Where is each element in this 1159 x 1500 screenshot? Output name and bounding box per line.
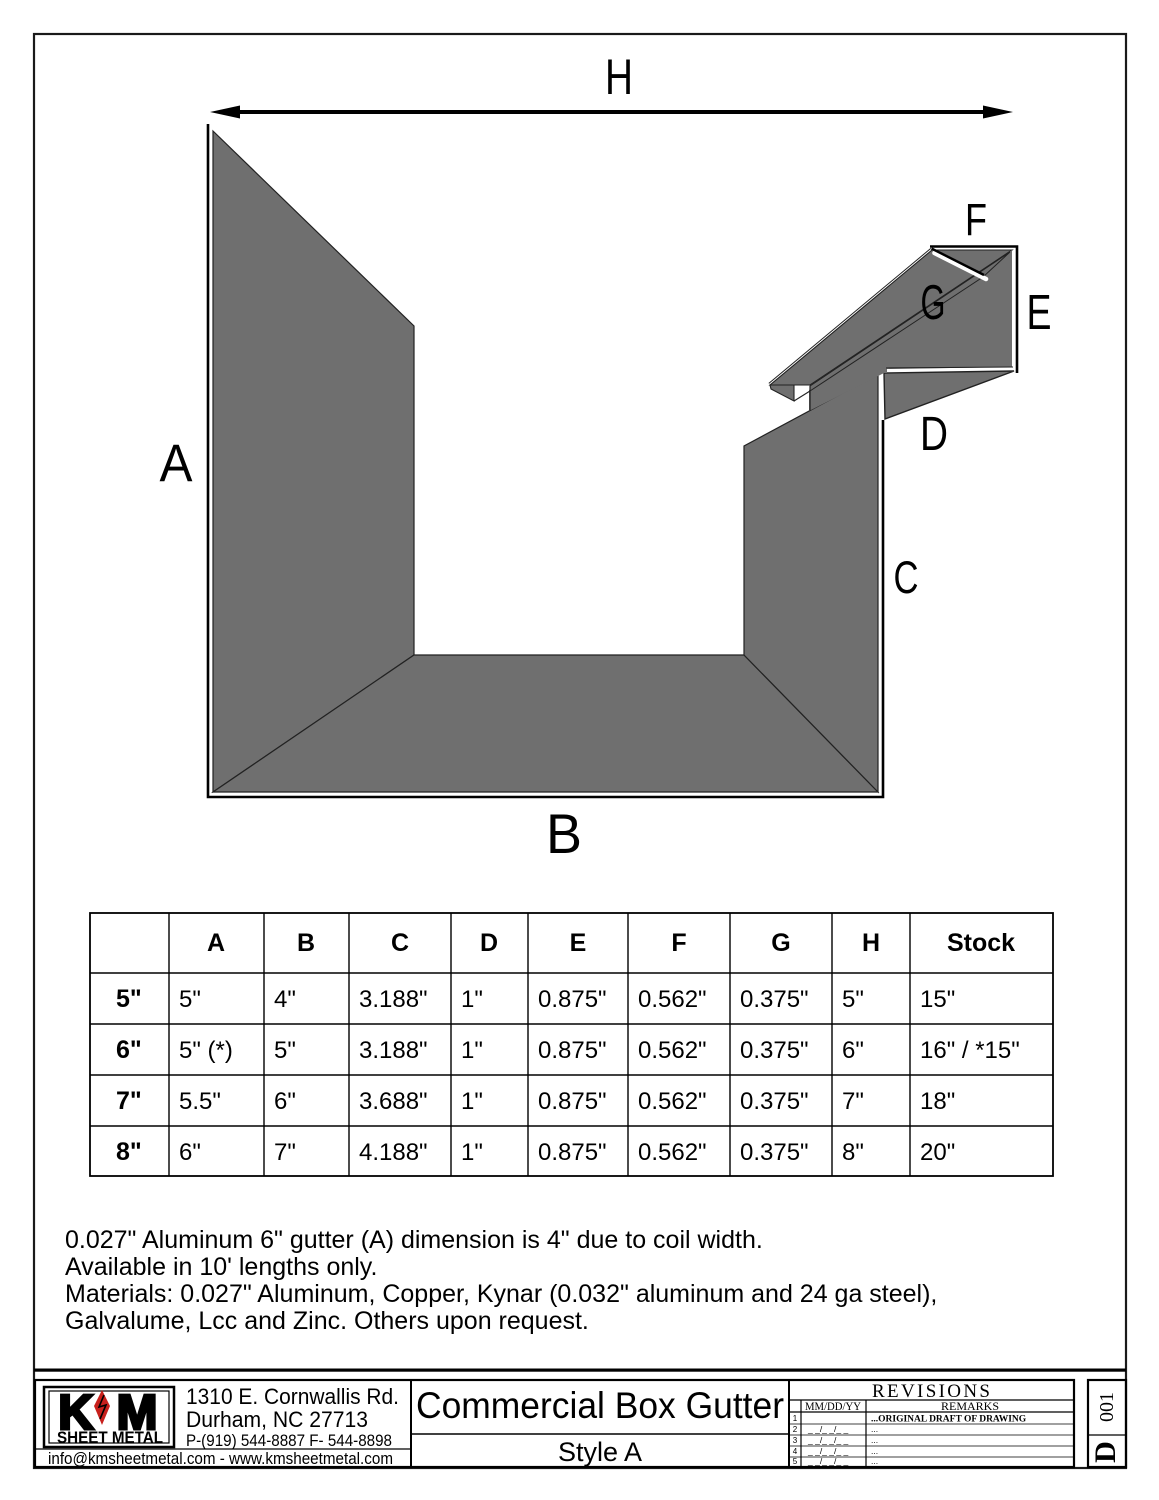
svg-text:1: 1 [793, 1414, 798, 1423]
svg-text:H: H [605, 49, 633, 105]
svg-text:6": 6" [842, 1037, 864, 1064]
svg-text:E: E [570, 929, 587, 957]
svg-text:0.562": 0.562" [638, 1088, 707, 1115]
svg-text:_ _/_ _/_ _: _ _/_ _/_ _ [807, 1446, 848, 1456]
svg-text:D: D [480, 929, 498, 957]
svg-text:20": 20" [920, 1139, 955, 1166]
svg-text:0.375": 0.375" [740, 1139, 809, 1166]
svg-text:1": 1" [461, 1139, 483, 1166]
svg-text:P-(919) 544-8887 F- 544-8898: P-(919) 544-8887 F- 544-8898 [186, 1431, 392, 1450]
svg-text:0.375": 0.375" [740, 1088, 809, 1115]
svg-text:5: 5 [793, 1457, 798, 1466]
svg-text:Available in 10' lengths only.: Available in 10' lengths only. [65, 1253, 377, 1281]
svg-text:5.5": 5.5" [179, 1088, 221, 1115]
svg-text:0.562": 0.562" [638, 1139, 707, 1166]
svg-text:D: D [920, 408, 948, 461]
svg-text:B: B [297, 929, 315, 957]
svg-text:3.188": 3.188" [359, 1037, 428, 1064]
svg-text:4.188": 4.188" [359, 1139, 428, 1166]
svg-text:...: ... [871, 1435, 878, 1445]
svg-text:B: B [546, 802, 582, 865]
svg-text:REMARKS: REMARKS [941, 1399, 999, 1413]
svg-text:_ _/_ _/_ _: _ _/_ _/_ _ [807, 1435, 848, 1445]
svg-text:001: 001 [1096, 1392, 1118, 1422]
svg-text:0.562": 0.562" [638, 986, 707, 1013]
svg-text:D: D [1089, 1441, 1122, 1463]
svg-text:Stock: Stock [947, 929, 1015, 957]
svg-text:...: ... [871, 1424, 878, 1434]
svg-text:6": 6" [116, 1036, 142, 1064]
svg-text:C: C [391, 929, 409, 957]
svg-text:1": 1" [461, 1037, 483, 1064]
svg-text:_ _/_ _/_ _: _ _/_ _/_ _ [807, 1424, 848, 1434]
svg-text:...: ... [871, 1446, 878, 1456]
svg-text:MM/DD/YY: MM/DD/YY [805, 1399, 861, 1413]
svg-text:E: E [1027, 286, 1052, 340]
svg-text:5": 5" [179, 986, 201, 1013]
svg-text:A: A [207, 929, 225, 957]
svg-text:3.688": 3.688" [359, 1088, 428, 1115]
svg-text:3: 3 [793, 1436, 798, 1445]
svg-text:...: ... [871, 1456, 878, 1466]
svg-text:F: F [671, 929, 686, 957]
svg-text:...ORIGINAL DRAFT OF DRAWING: ...ORIGINAL DRAFT OF DRAWING [871, 1415, 1027, 1425]
svg-text:info@kmsheetmetal.com - www.km: info@kmsheetmetal.com - www.kmsheetmetal… [48, 1449, 393, 1468]
svg-text:2: 2 [793, 1425, 798, 1434]
svg-text:16" / *15": 16" / *15" [920, 1037, 1020, 1064]
svg-text:0.875": 0.875" [538, 1139, 607, 1166]
svg-text:A: A [160, 434, 194, 493]
svg-text:15": 15" [920, 986, 955, 1013]
svg-text:5" (*): 5" (*) [179, 1037, 233, 1064]
svg-text:1": 1" [461, 986, 483, 1013]
svg-text:_ _/_ _/_ _: _ _/_ _/_ _ [807, 1456, 848, 1466]
svg-text:5": 5" [116, 985, 142, 1013]
svg-text:0.875": 0.875" [538, 986, 607, 1013]
svg-text:8": 8" [116, 1138, 142, 1166]
svg-text:0.562": 0.562" [638, 1037, 707, 1064]
svg-text:6": 6" [274, 1088, 296, 1115]
svg-text:0.875": 0.875" [538, 1037, 607, 1064]
svg-text:5": 5" [842, 986, 864, 1013]
svg-text:G: G [921, 276, 946, 330]
svg-text:Materials: 0.027" Aluminum, Co: Materials: 0.027" Aluminum, Copper, Kyna… [65, 1280, 937, 1308]
svg-text:18": 18" [920, 1088, 955, 1115]
svg-text:G: G [771, 929, 790, 957]
svg-text:8": 8" [842, 1139, 864, 1166]
svg-text:0.375": 0.375" [740, 986, 809, 1013]
svg-text:7": 7" [842, 1088, 864, 1115]
svg-text:0.027" Aluminum 6" gutter (A): 0.027" Aluminum 6" gutter (A) dimension … [65, 1226, 763, 1254]
svg-text:1310 E. Cornwallis Rd.: 1310 E. Cornwallis Rd. [186, 1384, 399, 1409]
svg-text:4: 4 [793, 1447, 798, 1456]
svg-text:7": 7" [274, 1139, 296, 1166]
svg-text:7": 7" [116, 1087, 142, 1115]
svg-text:0.875": 0.875" [538, 1088, 607, 1115]
svg-text:3.188": 3.188" [359, 986, 428, 1013]
svg-text:Style A: Style A [558, 1437, 642, 1467]
svg-text:C: C [894, 552, 919, 603]
svg-text:Commercial Box Gutter: Commercial Box Gutter [416, 1385, 784, 1426]
svg-text:6": 6" [179, 1139, 201, 1166]
svg-text:Galvalume, Lcc and Zinc. Other: Galvalume, Lcc and Zinc. Others upon req… [65, 1307, 589, 1335]
svg-text:F: F [965, 194, 987, 245]
svg-text:Durham, NC 27713: Durham, NC 27713 [186, 1407, 368, 1432]
svg-text:1": 1" [461, 1088, 483, 1115]
svg-text:SHEET METAL: SHEET METAL [57, 1429, 163, 1447]
svg-text:0.375": 0.375" [740, 1037, 809, 1064]
svg-text:4": 4" [274, 986, 296, 1013]
svg-text:5": 5" [274, 1037, 296, 1064]
svg-text:H: H [862, 929, 880, 957]
